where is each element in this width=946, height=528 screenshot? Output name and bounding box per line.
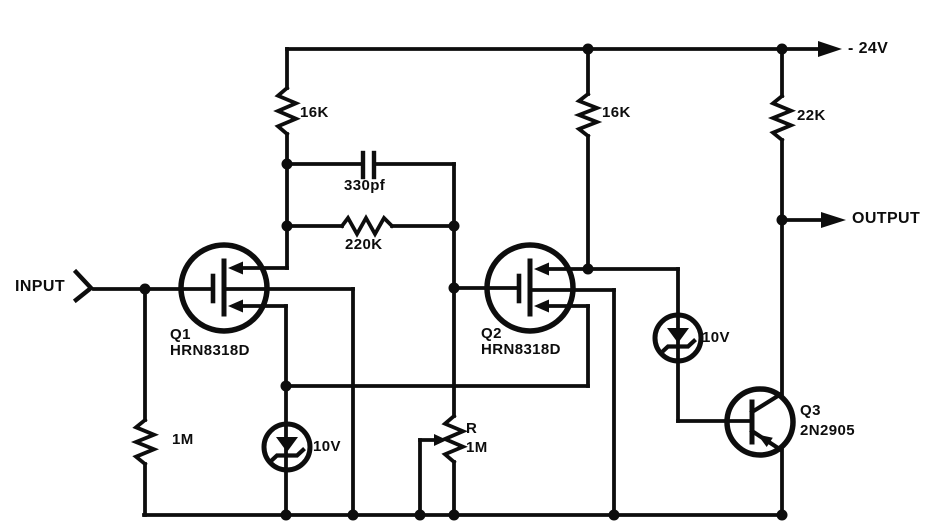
output-label: OUTPUT xyxy=(852,211,920,227)
supply-arrow-icon xyxy=(818,41,842,57)
input-label: INPUT xyxy=(15,279,65,295)
q2-part-label: HRN8318D xyxy=(481,342,561,357)
r2-value-label: 16K xyxy=(602,105,631,120)
q3-part-label: 2N2905 xyxy=(800,423,855,438)
resistor-r4-220k xyxy=(287,218,454,234)
q3-name-label: Q3 xyxy=(800,403,821,418)
resistor-r5-1m xyxy=(136,289,154,515)
r5-value-label: 1M xyxy=(172,432,194,447)
capacitor-330pf xyxy=(287,153,454,177)
mosfet-q2 xyxy=(454,245,678,515)
schematic-page: INPUT - 24V OUTPUT 16K 16K 22K 330pf 220… xyxy=(0,0,946,528)
pot-name-label: R xyxy=(466,421,477,436)
junction-dots xyxy=(140,44,788,521)
resistor-r2-16k xyxy=(579,49,597,269)
q1-name-label: Q1 xyxy=(170,327,191,342)
r3-value-label: 22K xyxy=(797,108,826,123)
r4-value-label: 220K xyxy=(345,237,382,252)
mosfet-q1 xyxy=(181,245,353,515)
q1-part-label: HRN8318D xyxy=(170,343,250,358)
pot-value-label: 1M xyxy=(466,440,488,455)
c1-value-label: 330pf xyxy=(344,178,385,193)
zener-left-value-label: 10V xyxy=(313,439,341,454)
r1-value-label: 16K xyxy=(300,105,329,120)
potentiometer-r-1m xyxy=(420,416,463,515)
q2-name-label: Q2 xyxy=(481,326,502,341)
top-rail-wire xyxy=(287,49,820,88)
resistor-r1-16k xyxy=(278,88,296,268)
supply-label: - 24V xyxy=(848,41,888,57)
output-arrow-icon xyxy=(782,212,846,228)
zener-right-value-label: 10V xyxy=(702,330,730,345)
input-chevron-icon xyxy=(76,272,91,300)
